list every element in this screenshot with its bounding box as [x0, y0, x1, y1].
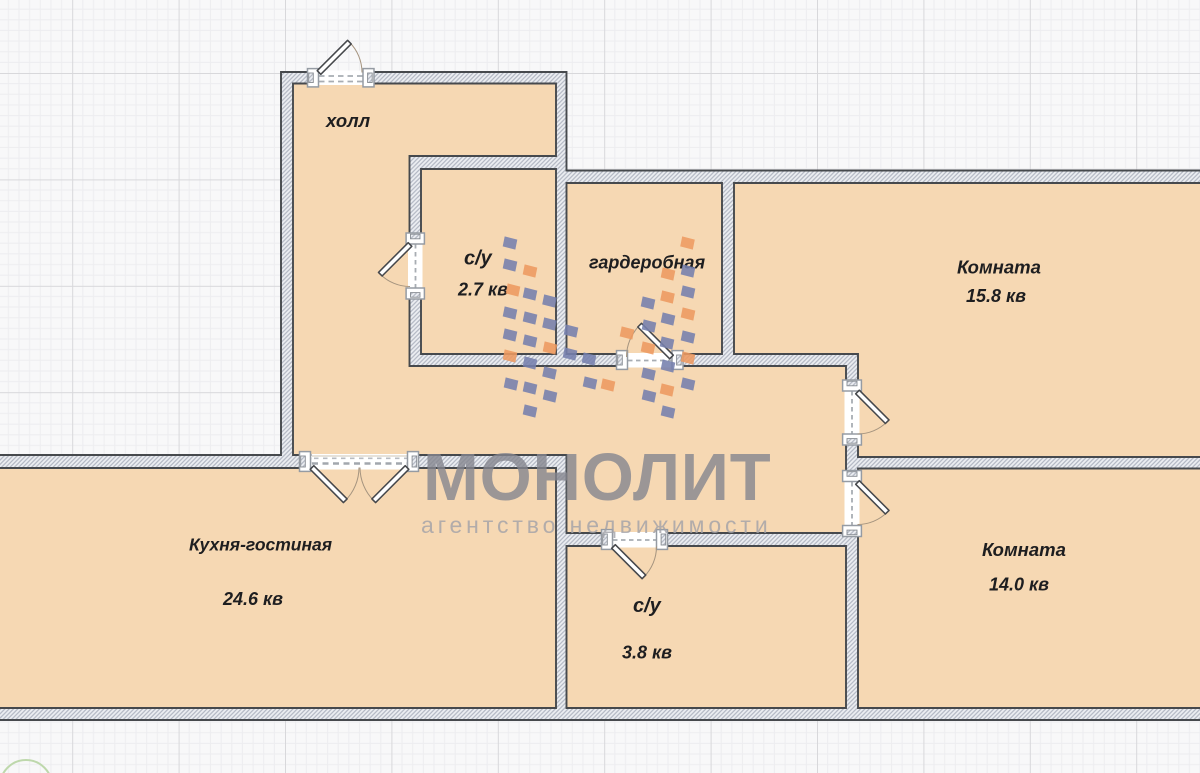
svg-text:Комната: Комната [982, 539, 1066, 560]
svg-text:14.0 кв: 14.0 кв [989, 575, 1049, 595]
svg-text:агентство недвижимости: агентство недвижимости [421, 512, 772, 538]
svg-text:холл: холл [325, 110, 371, 131]
svg-text:Кухня-гостиная: Кухня-гостиная [189, 535, 332, 555]
svg-text:15.8 кв: 15.8 кв [966, 286, 1026, 306]
svg-text:3.8 кв: 3.8 кв [622, 643, 672, 663]
svg-text:с/у: с/у [464, 248, 493, 270]
svg-text:2.7 кв: 2.7 кв [457, 280, 508, 300]
svg-text:МОНОЛИТ: МОНОЛИТ [423, 440, 771, 515]
svg-text:с/у: с/у [633, 595, 662, 617]
svg-text:24.6 кв: 24.6 кв [222, 589, 283, 609]
svg-text:Комната: Комната [957, 257, 1041, 278]
